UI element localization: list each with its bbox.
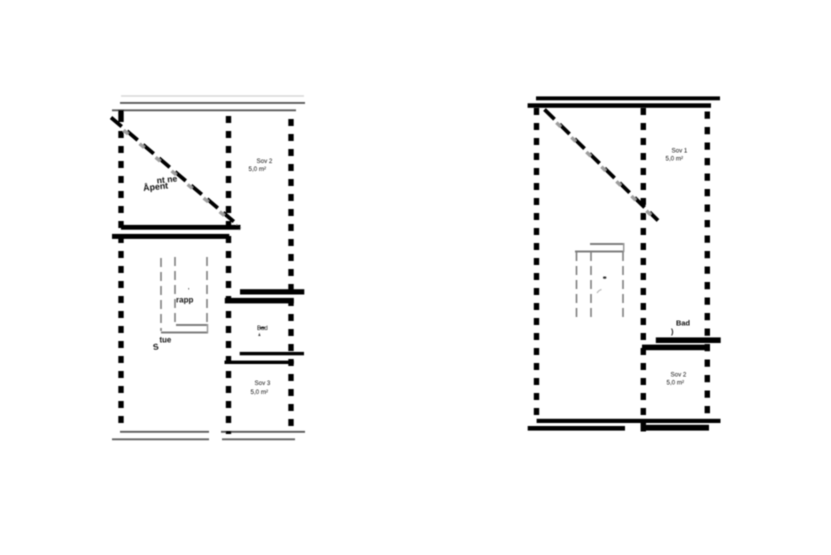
svg-text:5,0 m²: 5,0 m² bbox=[251, 389, 269, 396]
svg-text:': ' bbox=[188, 288, 189, 295]
svg-text:Sov 2: Sov 2 bbox=[257, 158, 273, 165]
svg-text:Sov 2: Sov 2 bbox=[671, 371, 687, 378]
svg-text:Sov 3: Sov 3 bbox=[255, 380, 271, 387]
svg-text:rapp: rapp bbox=[176, 296, 193, 305]
svg-text:5,0 m²: 5,0 m² bbox=[667, 379, 685, 386]
svg-text:tue: tue bbox=[160, 335, 172, 344]
svg-text:5,0 m²: 5,0 m² bbox=[666, 155, 684, 162]
svg-text:5,0 m²: 5,0 m² bbox=[249, 166, 267, 173]
svg-text:Sov 1: Sov 1 bbox=[672, 147, 688, 154]
svg-text:Bad: Bad bbox=[676, 319, 690, 328]
